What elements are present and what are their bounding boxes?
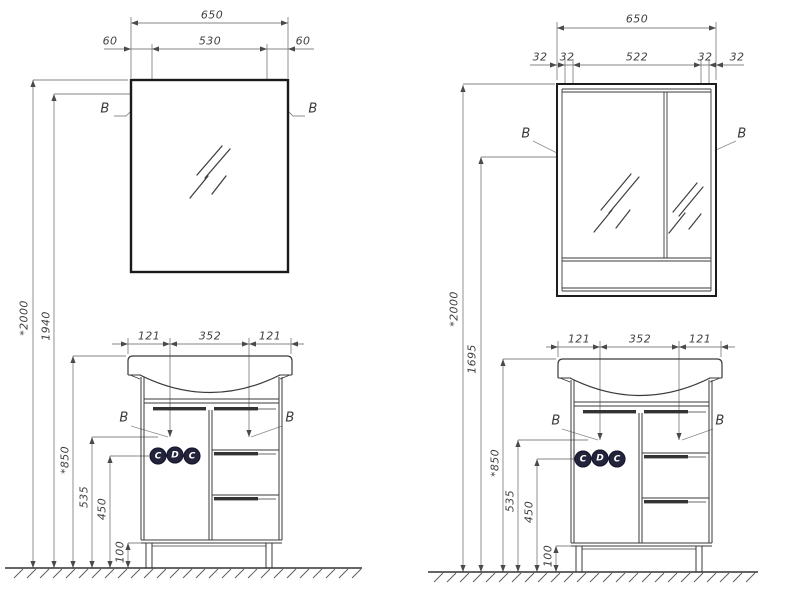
right-mirror-cabinet <box>557 84 716 296</box>
dim-right-offset-outer-right: 32 <box>730 52 745 63</box>
right-badge-c1: C <box>575 451 592 468</box>
dim-left-mirror-offset-left: 60 <box>103 36 118 47</box>
left-badge-c1: C <box>150 448 167 465</box>
detail-label-right-vanity-right: B <box>715 415 724 428</box>
dim-left-mount-height: 1940 <box>41 311 52 341</box>
dim-right-door-width: 522 <box>626 52 648 63</box>
dim-right-offset-inner-right: 32 <box>698 52 713 63</box>
dim-left-vanity-height-plinth: 100 <box>115 541 126 563</box>
dim-right-vanity-width-right: 121 <box>689 334 711 345</box>
right-badge-c2: C <box>609 451 626 468</box>
dim-right-cabinet-width: 650 <box>626 14 648 25</box>
detail-label-left-vanity-right: B <box>285 412 294 425</box>
dim-right-vanity-height-plinth: 100 <box>543 545 554 567</box>
dim-right-mount-height: 1695 <box>467 344 478 374</box>
dim-left-vanity-height-mid: 535 <box>79 486 90 508</box>
detail-label-left-vanity-left: B <box>119 412 128 425</box>
dim-left-vanity-width-basin: 352 <box>199 331 221 342</box>
detail-label-left-mirror-left: B <box>100 103 109 116</box>
dim-right-wall-height: *2000 <box>449 291 460 327</box>
dim-left-vanity-height-low: 450 <box>97 498 108 520</box>
left-ground <box>5 568 362 578</box>
detail-label-left-mirror-right: B <box>308 103 317 116</box>
detail-label-right-cabinet-right: B <box>737 128 746 141</box>
dim-left-mirror-offset-right: 60 <box>296 36 311 47</box>
dim-right-vanity-width-left: 121 <box>568 334 590 345</box>
technical-drawing <box>0 0 796 600</box>
dim-left-vanity-width-left: 121 <box>138 331 160 342</box>
dim-right-vanity-height-total: *850 <box>490 449 501 477</box>
dim-left-mirror-width: 650 <box>201 10 223 21</box>
dim-right-vanity-height-low: 450 <box>524 501 535 523</box>
left-badge-c2: C <box>184 448 201 465</box>
blueprint-canvas: 650 60 530 60 *2000 1940 B B 121 352 121… <box>0 0 796 600</box>
right-badge-d: D <box>592 450 609 467</box>
dim-left-mirror-glass-width: 530 <box>199 36 221 47</box>
dim-right-vanity-height-mid: 535 <box>505 490 516 512</box>
right-ground <box>428 572 758 582</box>
left-mirror <box>131 80 288 272</box>
dim-left-vanity-width-right: 121 <box>259 331 281 342</box>
detail-label-right-cabinet-left: B <box>521 128 530 141</box>
dim-right-offset-outer-left: 32 <box>533 52 548 63</box>
dim-right-vanity-width-basin: 352 <box>629 334 651 345</box>
dim-left-vanity-height-total: *850 <box>60 446 71 474</box>
detail-label-right-vanity-left: B <box>551 415 560 428</box>
dim-left-wall-height: *2000 <box>19 300 30 336</box>
left-badge-d: D <box>167 447 184 464</box>
dim-right-offset-inner-left: 32 <box>560 52 575 63</box>
